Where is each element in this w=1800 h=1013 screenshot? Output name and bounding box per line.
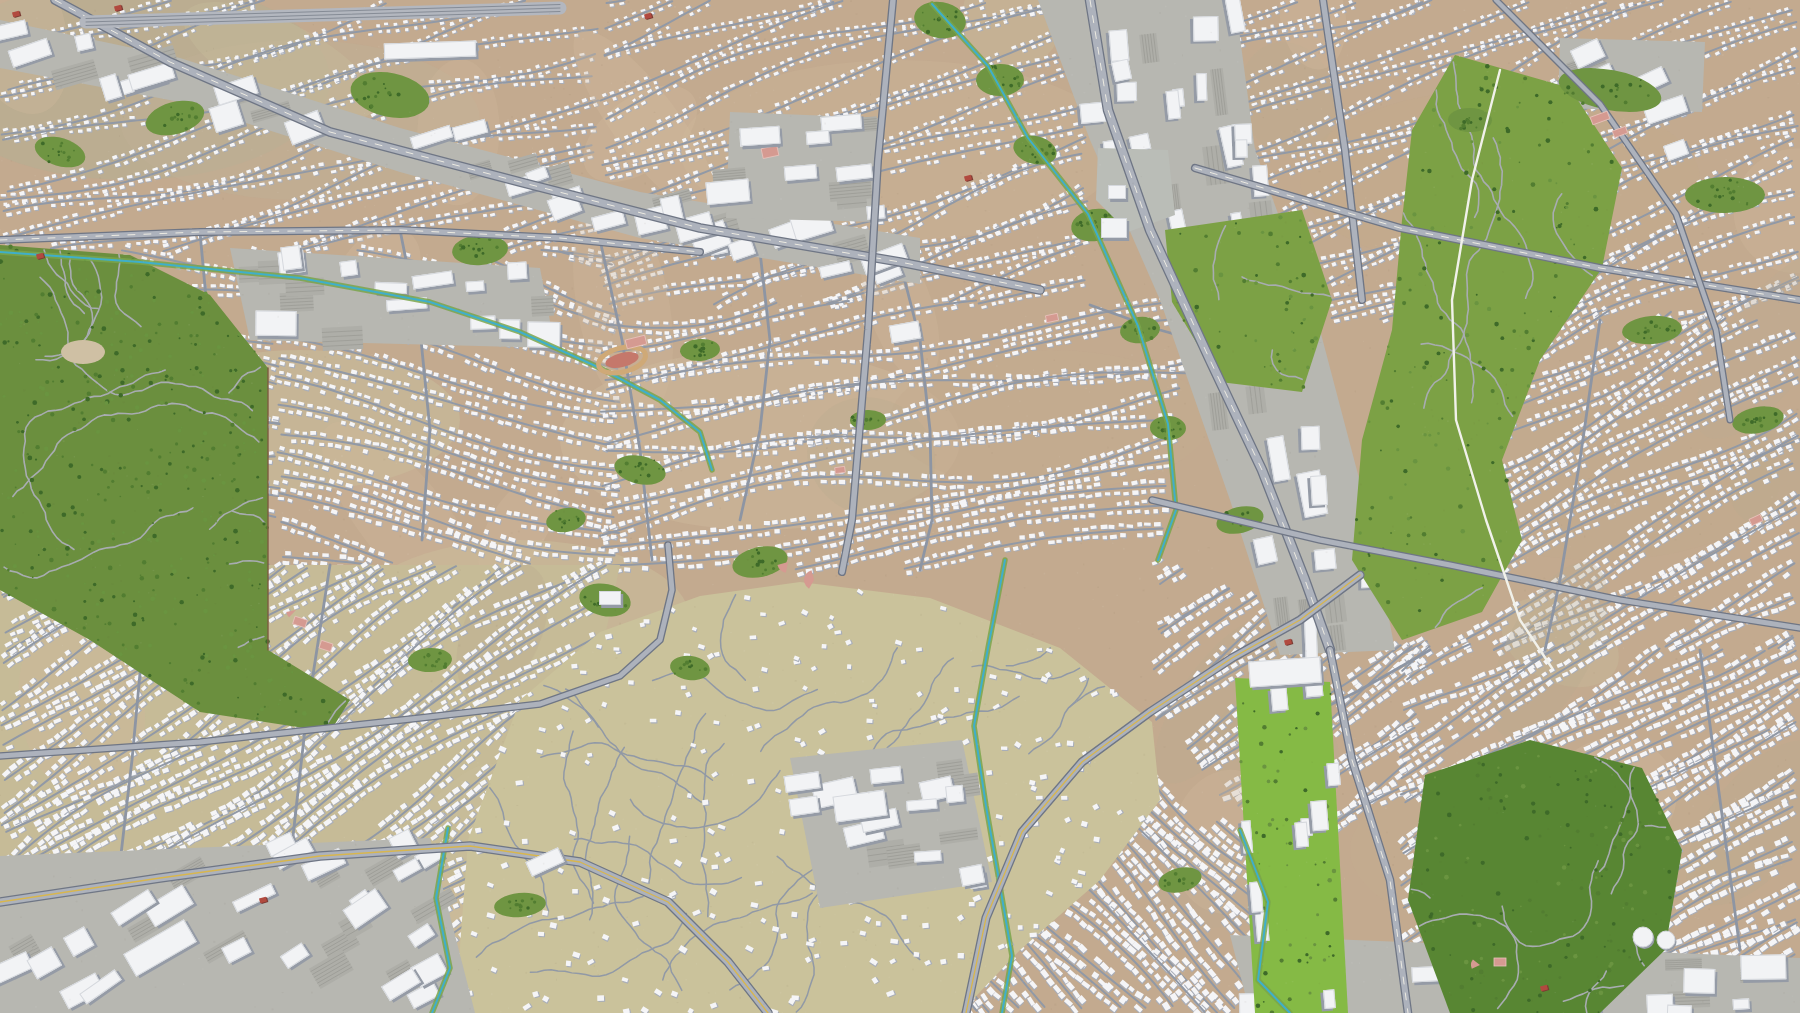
city-3d-map-viewport[interactable] [0, 0, 1800, 1013]
map-render-canvas [0, 0, 1800, 1013]
